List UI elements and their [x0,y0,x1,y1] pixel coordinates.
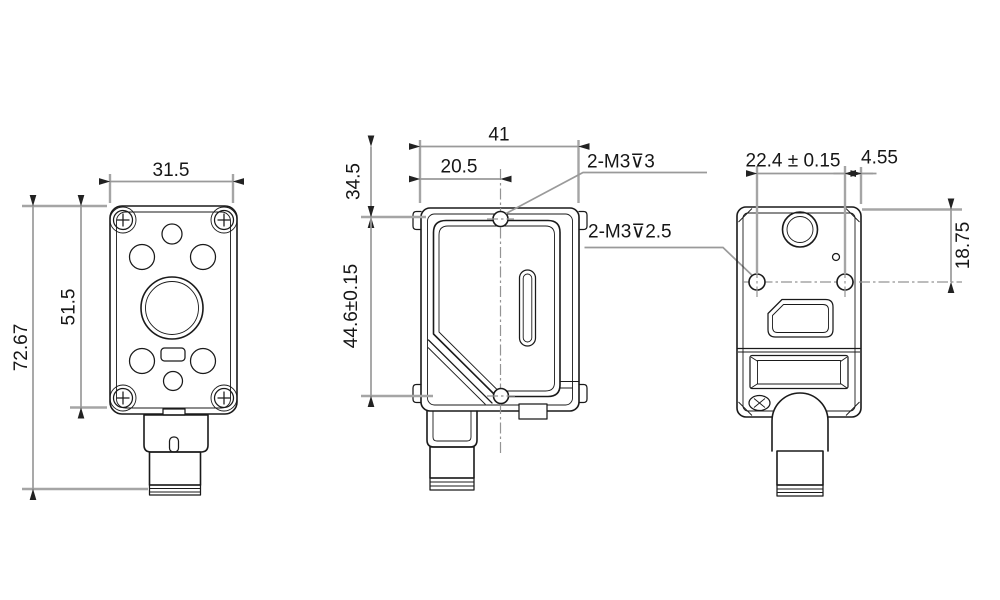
dim-label-side-hole-spacing: 22.4 ± 0.15 [746,151,841,172]
dim-side-hole-edge: 4.55 [834,148,898,205]
side-cable-boot [772,393,828,451]
dim-label-front-panel-height: 51.5 [59,289,80,326]
front-bottom-indicator [164,372,183,391]
side-view: 22.4 ± 0.15 4.55 18.75 [737,148,974,497]
dim-side-top-to-hole: 18.75 [862,210,974,283]
dim-front-width: 31.5 [110,160,233,203]
back-hatched-window [434,221,561,397]
front-upper-right-led [191,245,216,270]
front-connector-key [170,437,179,452]
callout-side-holes: 2-M3⊽2.5 [585,222,757,280]
dim-back-hole-spacing: 44.6±0.15 [341,217,433,396]
side-focus-knob [783,212,818,247]
side-bottom-screw [749,396,770,411]
front-upper-left-led [130,245,155,270]
back-side-slot [520,270,536,346]
front-aperture-slot [161,348,185,361]
side-label-window [768,300,833,338]
front-lower-left-led [130,349,155,374]
engineering-drawing: 31.5 72.67 51.5 [0,0,1000,600]
dim-label-back-width: 41 [488,125,509,146]
dim-back-hole-offset: 20.5 [420,157,501,180]
front-view: 31.5 72.67 51.5 [11,160,237,495]
front-body-outline [110,206,237,414]
dim-label-back-top-section: 34.5 [344,163,365,200]
side-connector [772,393,828,496]
front-panel-inset [117,212,231,408]
callout-back-holes: 2-M3⊽3 [506,152,707,214]
back-window-inner-line [439,226,555,391]
dim-label-front-width: 31.5 [153,160,190,181]
back-view: 41 20.5 34.5 44.6±0.15 2-M3⊽3 2-M3⊽2.5 [341,125,757,491]
dim-back-top-section: 34.5 [344,147,372,218]
dim-front-total-height: 72.67 [11,206,148,489]
dim-label-side-top-to-hole: 18.75 [953,222,974,270]
drawing-canvas: 31.5 72.67 51.5 [0,0,1000,600]
dim-label-front-total-height: 72.67 [11,324,32,372]
back-right-step-lines [560,382,579,389]
dim-label-back-hole-spacing: 44.6±0.15 [341,264,362,348]
dim-front-panel-height: 51.5 [59,206,108,408]
side-divider [738,349,860,353]
callout-label-side-holes: 2-M3⊽2.5 [588,222,672,243]
front-lens [141,277,203,339]
back-corner-chamfer-band [428,340,492,405]
front-top-indicator [162,224,182,244]
front-corner-screws [110,207,237,411]
dim-label-back-hole-offset: 20.5 [441,157,478,178]
front-lower-right-led [191,349,216,374]
dim-label-side-hole-edge: 4.55 [861,148,898,169]
front-connector [144,409,208,495]
side-pin-hole [833,254,840,261]
back-bottom-tab [519,404,547,419]
side-recessed-panel [750,356,848,389]
back-connector [427,411,477,490]
callout-label-back-holes: 2-M3⊽3 [587,152,655,173]
